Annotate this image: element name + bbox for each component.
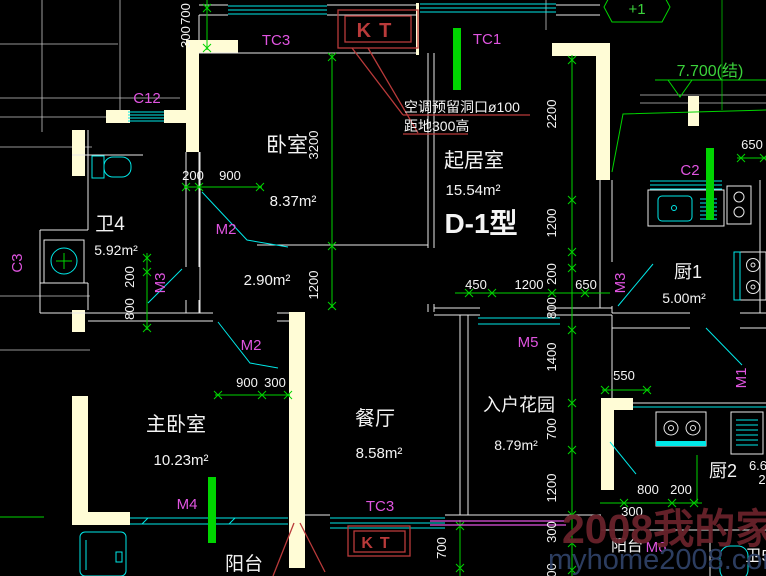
ac-note-line1: 空调预留洞口ø100 — [404, 99, 520, 115]
ac-note-line2: 距地300高 — [404, 118, 469, 134]
watermark: 2008我的家 myhome2008.com — [548, 506, 766, 576]
dim-k2-200: 200 — [670, 482, 692, 497]
tag-c2: C2 — [680, 162, 699, 179]
area-bedroom: 8.37m² — [270, 193, 317, 210]
unit-type-label: D-1型 — [444, 208, 517, 239]
cooktop-kitchen2 — [656, 412, 706, 446]
dim-chain-1200a: 1200 — [544, 209, 559, 238]
area-hall: 2.90m² — [244, 272, 291, 289]
room-label-dining: 餐厅 — [355, 407, 395, 430]
dim-tr-650: 650 — [741, 137, 763, 152]
tag-tc3-bottom: TC3 — [366, 498, 394, 515]
room-label-master: 主卧室 — [146, 413, 206, 436]
dim-chain-200: 200 — [544, 263, 559, 285]
room-label-living: 起居室 — [444, 149, 504, 172]
window-c12 — [128, 112, 164, 121]
window-tc3-top — [228, 6, 327, 14]
kt-label-top: KT — [357, 20, 400, 42]
axis-bubble-label: +1 — [628, 1, 645, 18]
room-label-bedroom: 卧室 — [266, 134, 308, 157]
dim-kt-700: 700 — [434, 537, 449, 559]
ac-note: 空调预留洞口ø100 距地300高 — [404, 99, 520, 134]
tag-tc1: TC1 — [473, 31, 501, 48]
window-tc1 — [420, 4, 556, 12]
dim-tl-700: 700 — [178, 3, 193, 25]
kt-label-bottom: KT — [361, 535, 396, 552]
washing-machine-balcony — [80, 532, 126, 576]
washbasin-bath4 — [44, 240, 84, 283]
area-master: 10.23m² — [153, 452, 208, 469]
dim-chain-2200: 2200 — [544, 100, 559, 129]
dim-m2b-300: 300 — [264, 375, 286, 390]
watermark-line2: myhome2008.com — [548, 544, 766, 576]
dim-chain-1200b: 1200 — [544, 474, 559, 503]
dim-m2b-900: 900 — [236, 375, 258, 390]
toilet-bath4 — [92, 156, 131, 178]
tag-m5: M5 — [518, 334, 539, 351]
dim-chain-700: 700 — [544, 418, 559, 440]
door-m1-leaf — [706, 328, 742, 365]
tag-m4: M4 — [177, 496, 198, 513]
area-kitchen1: 5.00m² — [662, 290, 706, 306]
tag-m2-a: M2 — [216, 221, 237, 238]
dim-mid-550: 550 — [613, 368, 635, 383]
tag-m1: M1 — [733, 368, 750, 389]
cooktop-kitchen1 — [734, 252, 766, 300]
tag-m3-right: M3 — [612, 273, 629, 294]
tag-m2-b: M2 — [241, 337, 262, 354]
dim-left-200: 200 — [122, 266, 137, 288]
tag-tc3-top: TC3 — [262, 32, 290, 49]
room-label-balcony-left: 阳台 — [225, 553, 263, 575]
dim-bed-1200: 1200 — [306, 271, 321, 300]
floorplan-canvas[interactable]: 卧室 8.37m² 2.90m² 起居室 15.54m² D-1型 卫4 5.9… — [0, 0, 766, 576]
area-dining: 8.58m² — [356, 445, 403, 462]
dim-liv-650: 650 — [575, 277, 597, 292]
dim-k2-800: 800 — [637, 482, 659, 497]
dim-chain-1400: 1400 — [544, 343, 559, 372]
area-kitchen2-partial2: 2 — [758, 472, 765, 487]
tag-c3: C3 — [9, 253, 26, 272]
dim-liv-450: 450 — [465, 277, 487, 292]
highlight-bar-m4 — [208, 477, 216, 543]
dim-left-800: 800 — [122, 298, 137, 320]
room-label-kitchen1: 厨1 — [674, 262, 702, 282]
dim-liv-1200: 1200 — [515, 277, 544, 292]
area-kitchen2-partial: 6.6 — [749, 458, 766, 473]
area-garden: 8.79m² — [494, 437, 538, 453]
dim-chain-300: 300 — [544, 521, 559, 543]
room-label-bath4: 卫4 — [95, 214, 125, 235]
room-label-kitchen2: 厨2 — [709, 461, 737, 481]
dim-tl-300: 300 — [178, 26, 193, 48]
tag-m3-left: M3 — [152, 273, 169, 294]
elevation-label: 7.700(结) — [677, 62, 744, 80]
dim-bed-200: 200 — [182, 168, 204, 183]
highlight-bar-tc1 — [453, 28, 461, 90]
area-bath4: 5.92m² — [94, 242, 138, 258]
dim-chain-800: 800 — [544, 297, 559, 319]
area-living: 15.54m² — [445, 182, 500, 199]
water-heater-kitchen1 — [727, 186, 751, 224]
room-label-garden: 入户花园 — [483, 395, 555, 415]
dim-bed-3200: 3200 — [306, 131, 321, 160]
floorplan-drawing: 卧室 8.37m² 2.90m² 起居室 15.54m² D-1型 卫4 5.9… — [0, 0, 766, 576]
highlight-bar-kitchen1 — [706, 148, 714, 220]
dim-bed-900: 900 — [219, 168, 241, 183]
appliance-kitchen2 — [731, 412, 763, 454]
elevation-symbol — [655, 80, 766, 97]
tag-c12: C12 — [133, 90, 161, 107]
